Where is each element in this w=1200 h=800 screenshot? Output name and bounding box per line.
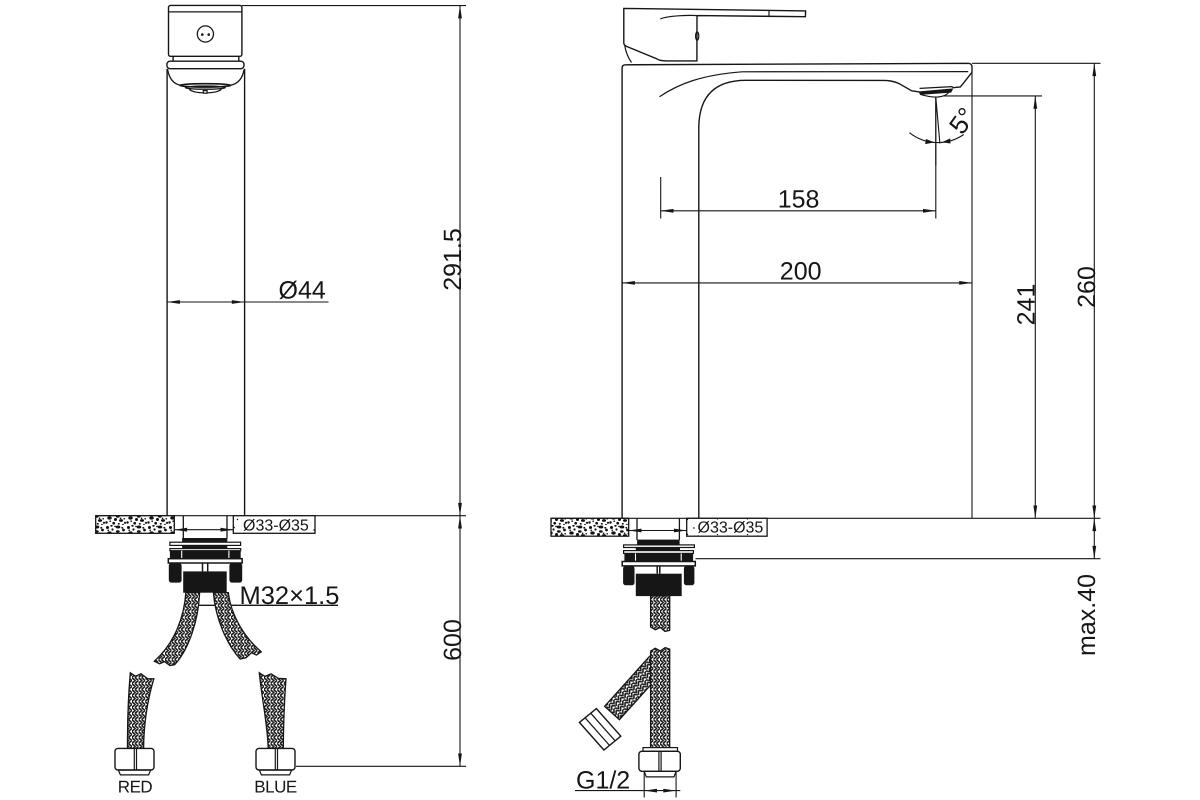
svg-text:241: 241: [1013, 284, 1041, 326]
svg-text:600: 600: [439, 619, 467, 661]
svg-text:M32×1.5: M32×1.5: [240, 582, 340, 610]
svg-text:200: 200: [780, 258, 822, 286]
svg-text:RED: RED: [118, 778, 153, 797]
svg-text:Ø33-Ø35: Ø33-Ø35: [698, 520, 764, 537]
svg-text:291.5: 291.5: [439, 228, 467, 291]
svg-text:260: 260: [1073, 266, 1101, 308]
svg-text:max.40: max.40: [1073, 574, 1101, 656]
svg-text:BLUE: BLUE: [254, 778, 297, 797]
svg-text:Ø33-Ø35: Ø33-Ø35: [243, 518, 309, 535]
svg-text:Ø44: Ø44: [279, 276, 326, 304]
svg-text:158: 158: [778, 186, 820, 214]
